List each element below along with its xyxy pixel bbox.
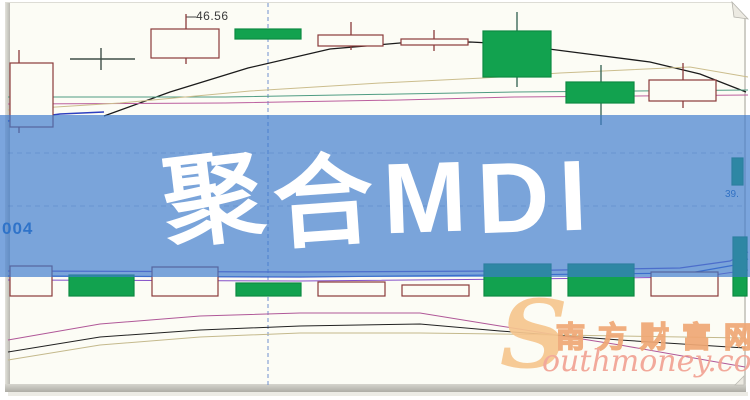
price-tag-label: 46.56 [196,10,229,22]
banner-title-char: 合 [270,150,377,257]
ma-tan-line [8,67,748,110]
watermark-domain-text: outhmoney.com [542,344,750,379]
candle-down [483,31,551,77]
candle-up [151,29,219,58]
banner-title-char: D [475,147,551,249]
volume-bar-up [318,282,385,296]
candle-up [318,35,383,46]
candle-up [401,39,468,45]
banner-title-char: I [557,146,588,247]
screenshot-stage: 46.56 004 39. 聚合MDI S 南方财富网 outhmoney.co… [0,0,750,400]
candle-up [649,80,716,101]
volume-bar-down [69,275,134,296]
banner-title-char: M [382,147,469,250]
candle-down [566,82,634,103]
volume-bar-down [236,283,301,296]
volume-bar-up [402,285,469,296]
banner-title-char: 聚 [158,144,269,255]
banner-title: 聚合MDI [0,118,750,278]
candle-down [235,29,301,39]
watermark: S 南方财富网 outhmoney.com [498,292,750,392]
